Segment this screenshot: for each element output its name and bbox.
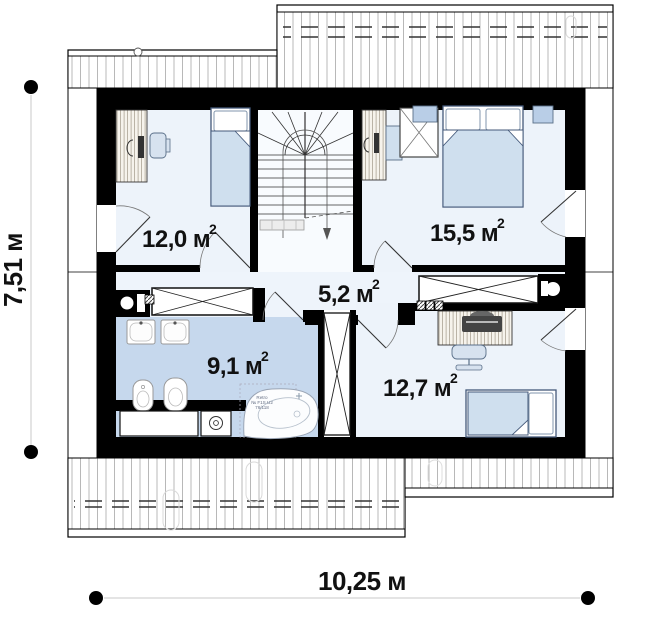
dimension-marker <box>24 445 38 459</box>
room-area-label: 5,2 м <box>318 281 373 308</box>
roof-bottom-left <box>68 458 405 537</box>
sink-icon <box>127 320 155 344</box>
vanity-cabinet <box>120 411 198 436</box>
room-area-exponent: 2 <box>261 348 269 364</box>
chimney-icon <box>134 48 142 56</box>
left-wall-opening <box>97 205 116 252</box>
bidet-icon <box>164 378 187 411</box>
room-area-label: 15,5 м <box>430 220 498 247</box>
closet-icon <box>324 313 350 435</box>
chair-icon <box>150 133 166 158</box>
roof-bottom-right <box>405 458 613 497</box>
double-bed-icon <box>443 106 523 207</box>
single-bed-icon <box>211 108 250 206</box>
monitor-icon <box>138 136 144 158</box>
nightstand-icon <box>533 106 553 123</box>
room-area-label: 9,1 м <box>207 353 262 380</box>
monitor-icon <box>374 133 379 153</box>
pillow <box>529 393 553 434</box>
wardrobe-icon <box>400 106 438 157</box>
right-wall-opening-top <box>565 190 585 237</box>
chair-icon <box>452 345 486 370</box>
right-wall-opening-bottom <box>565 308 585 350</box>
room-area-exponent: 2 <box>209 221 217 237</box>
dimension-marker <box>581 591 595 605</box>
pillow <box>486 109 520 130</box>
pillow <box>446 109 480 130</box>
dimension-marker <box>89 591 103 605</box>
sink-icon <box>161 320 189 344</box>
room-area-exponent: 2 <box>450 370 458 386</box>
dimension-marker <box>24 80 38 94</box>
roof-top-right <box>277 5 613 88</box>
room-area-label: 12,7 м <box>383 375 451 402</box>
water-heater-icon <box>201 411 231 436</box>
wardrobe-icon <box>152 288 253 315</box>
room-area-label: 12,0 м <box>142 226 210 253</box>
floor-plan-page: Retro № F1S U2 76/118 <box>0 0 655 634</box>
eave-strip-right <box>585 88 613 458</box>
room-area-exponent: 2 <box>372 276 380 292</box>
toilet-icon <box>133 380 153 411</box>
stair-railing <box>260 220 304 230</box>
washing-machine-icon <box>538 274 565 305</box>
single-bed-icon <box>466 390 556 437</box>
width-dimension-label: 10,25 м <box>318 566 406 596</box>
bathtub-model-line3: 76/118 <box>255 405 269 410</box>
floor-plan-svg: Retro № F1S U2 76/118 <box>0 0 655 634</box>
roof-top-left <box>68 48 277 88</box>
height-dimension-label: 7,51 м <box>0 233 28 307</box>
wardrobe-icon <box>419 276 538 303</box>
room-area-exponent: 2 <box>497 215 505 231</box>
pillow <box>214 111 247 131</box>
eave-strip-left <box>68 88 97 458</box>
